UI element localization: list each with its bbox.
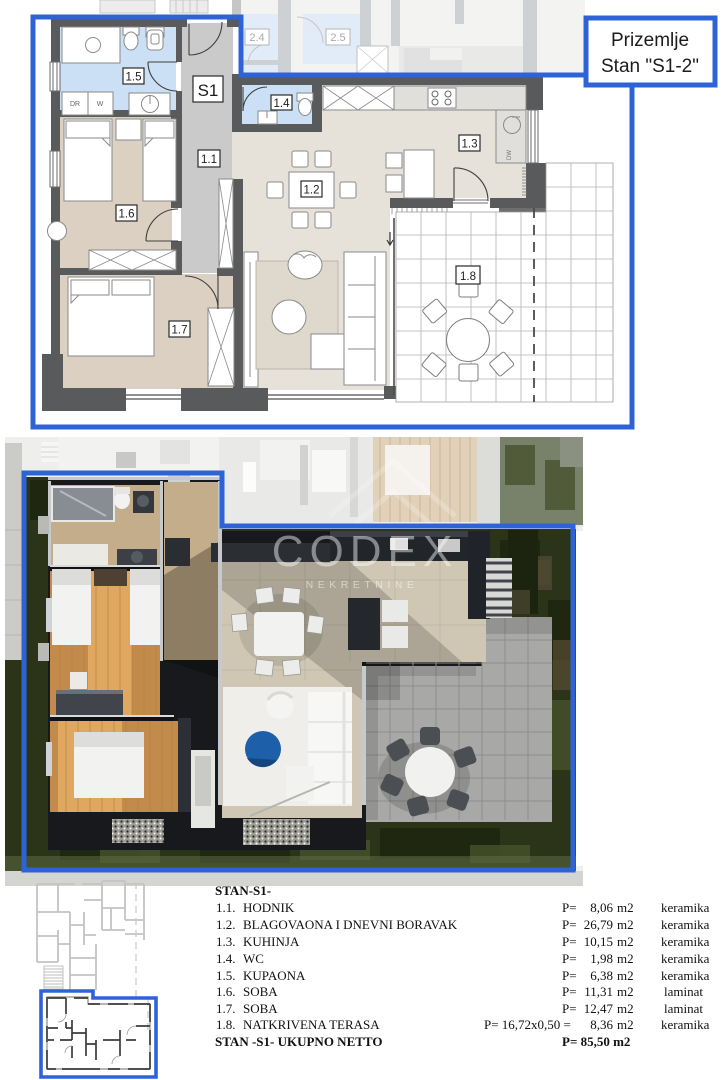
svg-text:6,38: 6,38 bbox=[590, 968, 613, 983]
svg-text:Stan "S1-2": Stan "S1-2" bbox=[601, 56, 699, 77]
svg-text:CODEX: CODEX bbox=[272, 527, 458, 576]
svg-text:8,36: 8,36 bbox=[590, 1017, 613, 1032]
svg-text:1.8: 1.8 bbox=[460, 271, 476, 283]
svg-text:2.4: 2.4 bbox=[249, 32, 264, 44]
svg-text:NATKRIVENA TERASA: NATKRIVENA TERASA bbox=[243, 1017, 380, 1032]
svg-text:STAN-S1-: STAN-S1- bbox=[215, 883, 271, 898]
svg-text:P=: P= bbox=[562, 968, 577, 983]
svg-text:1.1.: 1.1. bbox=[216, 900, 236, 915]
svg-text:keramika: keramika bbox=[661, 1017, 710, 1032]
svg-text:1.5: 1.5 bbox=[126, 72, 142, 84]
svg-text:m2: m2 bbox=[617, 1001, 634, 1016]
svg-text:keramika: keramika bbox=[661, 900, 710, 915]
svg-text:1.8.: 1.8. bbox=[216, 1017, 236, 1032]
svg-text:P=: P= bbox=[562, 1001, 577, 1016]
svg-text:DR: DR bbox=[70, 101, 80, 108]
svg-text:DW: DW bbox=[507, 150, 513, 160]
svg-text:1.3: 1.3 bbox=[462, 139, 478, 151]
svg-text:m2: m2 bbox=[617, 900, 634, 915]
svg-text:STAN -S1- UKUPNO NETTO: STAN -S1- UKUPNO NETTO bbox=[215, 1034, 382, 1049]
svg-text:SOBA: SOBA bbox=[243, 1001, 278, 1016]
svg-text:2.5: 2.5 bbox=[330, 32, 345, 44]
svg-text:KUHINJA: KUHINJA bbox=[243, 934, 300, 949]
svg-text:keramika: keramika bbox=[661, 934, 710, 949]
svg-text:1.4.: 1.4. bbox=[216, 951, 236, 966]
svg-text:1.6.: 1.6. bbox=[216, 984, 236, 999]
svg-text:26,79: 26,79 bbox=[584, 917, 613, 932]
svg-text:P= 16,72x0,50 =: P= 16,72x0,50 = bbox=[484, 1017, 571, 1032]
svg-text:S1: S1 bbox=[198, 81, 219, 100]
svg-text:m2: m2 bbox=[617, 968, 634, 983]
svg-text:1.4: 1.4 bbox=[274, 98, 291, 110]
svg-text:Prizemlje: Prizemlje bbox=[611, 30, 689, 51]
svg-text:HODNIK: HODNIK bbox=[243, 900, 295, 915]
svg-text:m2: m2 bbox=[617, 984, 634, 999]
svg-text:SOBA: SOBA bbox=[243, 984, 278, 999]
svg-text:1.2: 1.2 bbox=[304, 185, 320, 197]
svg-text:1.5.: 1.5. bbox=[216, 968, 236, 983]
svg-text:P=: P= bbox=[562, 984, 577, 999]
svg-text:11,31: 11,31 bbox=[584, 984, 613, 999]
svg-text:1.7.: 1.7. bbox=[216, 1001, 236, 1016]
svg-text:1.3.: 1.3. bbox=[216, 934, 236, 949]
svg-text:8,06: 8,06 bbox=[590, 900, 613, 915]
svg-text:P= 85,50 m2: P= 85,50 m2 bbox=[562, 1034, 630, 1049]
svg-text:m2: m2 bbox=[617, 951, 634, 966]
svg-text:1.6: 1.6 bbox=[119, 209, 135, 221]
svg-text:BLAGOVAONA I DNEVNI BORAVAK: BLAGOVAONA I DNEVNI BORAVAK bbox=[243, 917, 458, 932]
svg-text:W: W bbox=[97, 101, 104, 108]
svg-text:WC: WC bbox=[243, 951, 264, 966]
svg-text:P=: P= bbox=[562, 951, 577, 966]
svg-text:m2: m2 bbox=[617, 934, 634, 949]
svg-text:keramika: keramika bbox=[661, 968, 710, 983]
svg-text:1,98: 1,98 bbox=[590, 951, 613, 966]
svg-text:keramika: keramika bbox=[661, 951, 710, 966]
svg-text:laminat: laminat bbox=[664, 1001, 703, 1016]
svg-text:P=: P= bbox=[562, 900, 577, 915]
svg-text:1.2.: 1.2. bbox=[216, 917, 236, 932]
svg-text:KUPAONA: KUPAONA bbox=[243, 968, 306, 983]
svg-text:1.7: 1.7 bbox=[172, 325, 188, 337]
svg-text:m2: m2 bbox=[617, 1017, 634, 1032]
svg-text:P=: P= bbox=[562, 917, 577, 932]
svg-text:m2: m2 bbox=[617, 917, 634, 932]
svg-text:keramika: keramika bbox=[661, 917, 710, 932]
svg-text:NEKRETNINE: NEKRETNINE bbox=[306, 579, 419, 591]
svg-text:laminat: laminat bbox=[664, 984, 703, 999]
svg-text:12,47: 12,47 bbox=[584, 1001, 614, 1016]
svg-text:P=: P= bbox=[562, 934, 577, 949]
svg-text:1.1: 1.1 bbox=[201, 154, 217, 166]
svg-text:10,15: 10,15 bbox=[584, 934, 613, 949]
